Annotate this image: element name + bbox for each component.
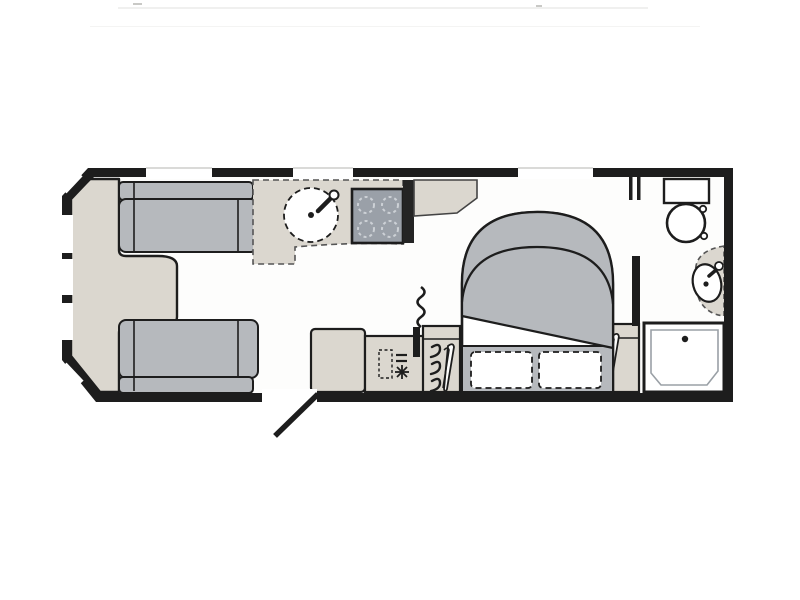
toilet-cistern (664, 179, 709, 203)
island-bed (462, 212, 613, 392)
shower (644, 323, 724, 392)
wardrobe-front (423, 326, 460, 392)
wall-stub (413, 327, 420, 357)
pillow-left (471, 352, 532, 388)
scanned-page (0, 0, 800, 600)
front-sofa-top (119, 182, 258, 252)
window-front-3 (59, 303, 73, 340)
washroom-doorway-jamb (632, 256, 640, 326)
tall-unit (403, 180, 414, 243)
toilet (664, 179, 709, 242)
window-front-2 (59, 259, 73, 295)
front-sofa-bottom (119, 320, 258, 393)
shower-drain (682, 336, 688, 342)
entry-door (262, 389, 317, 434)
window-front-1 (59, 215, 73, 253)
sink-drain (308, 212, 314, 218)
tap-head (330, 191, 339, 200)
shower-enclosure (644, 323, 724, 392)
basin-drain (703, 281, 708, 286)
pillow-right (539, 352, 601, 388)
snowflake-icon (395, 365, 409, 379)
basin-tap-head (715, 262, 723, 270)
base-cabinet (311, 329, 365, 392)
caravan-floorplan (0, 0, 800, 600)
